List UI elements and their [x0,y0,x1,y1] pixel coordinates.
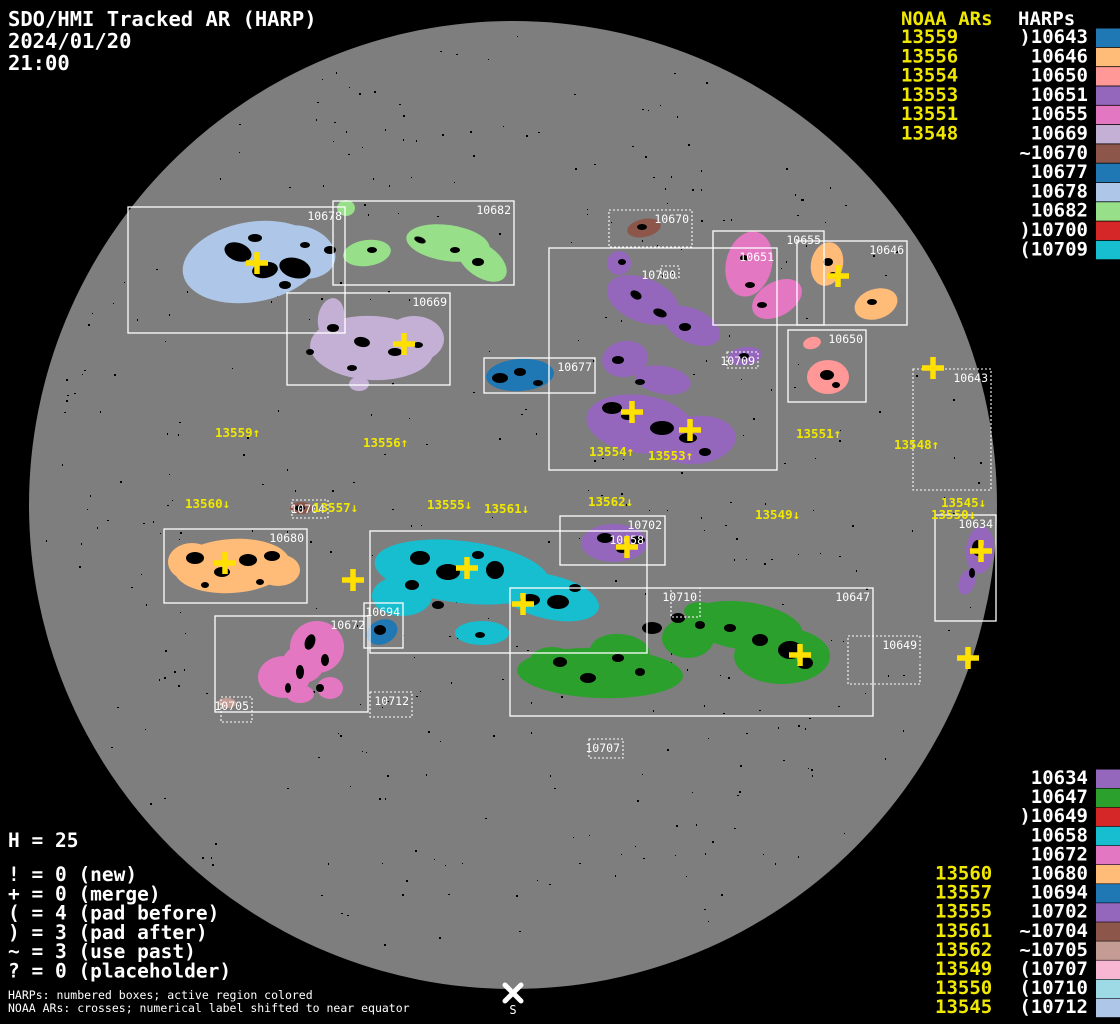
speckle [657,245,658,246]
speckle [421,525,422,526]
speckle [778,727,779,729]
active-region-10647 [662,618,714,658]
speckle [346,131,347,133]
legend-color-swatch-10682 [1096,202,1120,221]
harp-box-label-10643: 10643 [953,371,988,385]
speckle [725,525,727,526]
speckle [912,530,913,532]
speckle [316,608,317,609]
speckle [574,94,576,95]
speckle [362,147,363,148]
noaa-ar-label: 13545↓ [941,495,986,510]
harp-box-label-10680: 10680 [269,531,304,545]
noaa-ar-label: 13551↑ [796,426,841,441]
sunspot-patch [264,551,280,561]
speckle [384,944,386,946]
speckle [340,282,342,284]
speckle [271,301,272,303]
harp-box-label-10712: 10712 [374,694,409,708]
speckle [815,458,816,459]
speckle [561,696,563,698]
speckle [156,269,158,270]
speckle [798,725,800,727]
speckle [741,379,742,380]
sunspot-patch [321,654,329,666]
solar-harp-map: 1067810682106691067710651106551064610650… [0,0,1120,1024]
sunspot-patch [388,348,402,356]
speckle [403,115,405,117]
speckle [164,677,166,679]
legend-color-swatch-10678 [1096,183,1120,202]
speckle [665,188,666,190]
speckle [440,51,442,52]
speckle [426,444,428,445]
speckle [439,937,441,939]
sunspot-patch [602,402,622,414]
speckle [172,500,173,501]
speckle [167,433,168,435]
speckle [825,222,826,223]
speckle [167,505,169,506]
noaa-ar-label: 13560↓ [185,496,230,511]
sunspot-patch [186,552,204,564]
speckle [579,863,581,864]
legend-color-swatch-10649 [1096,808,1120,827]
sunspot-patch [374,625,386,635]
speckle [252,530,253,532]
speckle [499,438,501,440]
speckle [692,792,693,793]
legend-color-swatch-10709 [1096,241,1120,259]
speckle [648,110,649,111]
sunspot-patch [347,365,357,371]
legend-color-swatch-10694 [1096,884,1120,903]
sunspot-patch [553,657,567,667]
speckle [948,630,950,631]
noaa-ar-label: 13554↑ [589,444,634,459]
speckle [165,650,167,652]
speckle [786,261,787,263]
speckle [141,574,142,575]
speckle [589,835,590,836]
legend-color-swatch-10705 [1096,941,1120,960]
speckle [844,833,845,834]
speckle [653,177,655,178]
speckle [739,791,741,793]
speckle [92,313,93,314]
speckle [107,520,109,521]
noaa-ar-label: 13556↑ [363,435,408,450]
legend-color-swatch-10658 [1096,827,1120,846]
speckle [74,393,76,394]
speckle [353,482,355,483]
legend-color-swatch-10677 [1096,164,1120,183]
speckle [371,414,372,416]
speckle [753,418,755,420]
speckle [437,216,439,217]
sunspot-patch [327,324,339,332]
speckle [398,213,399,214]
speckle [643,858,645,859]
speckle [416,696,418,697]
speckle [764,563,766,565]
sunspot-patch [248,234,262,242]
speckle [373,178,374,180]
speckle [488,59,489,60]
speckle [675,855,676,856]
speckle [615,875,616,877]
speckle [588,490,589,491]
speckle [206,693,208,694]
speckle [649,510,650,511]
speckle [111,747,113,748]
speckle [687,669,688,671]
speckle [720,675,721,676]
noaa-ar-label: 13557↓ [313,500,358,515]
sunspot-patch [580,673,596,683]
speckle [406,880,408,882]
speckle [517,36,518,37]
speckle [723,713,725,714]
active-region-10669 [349,377,369,391]
sunspot-patch [486,561,504,579]
speckle [731,219,732,221]
speckle [632,146,634,147]
speckle [179,539,180,540]
sunspot-patch [650,421,674,435]
speckle [287,469,288,471]
legend-color-swatch-10680 [1096,865,1120,884]
sunspot-patch [724,624,736,632]
speckle [310,541,312,543]
speckle [798,856,799,858]
speckle [169,314,170,316]
speckle [239,152,240,153]
speckle [729,335,730,337]
sunspot-patch [405,580,419,590]
speckle [485,818,487,819]
speckle [667,203,668,204]
speckle [531,702,532,704]
speckle [97,527,98,529]
speckle [239,124,241,125]
speckle [317,102,319,103]
speckle [536,433,537,435]
speckle [145,729,146,730]
speckle [220,178,221,180]
harp-box-label-10655: 10655 [786,233,821,247]
speckle [379,798,381,800]
speckle [676,825,678,827]
harp-box-label-10672: 10672 [330,618,365,632]
speckle [865,693,866,694]
speckle [681,249,682,250]
speckle [316,119,317,121]
speckle [440,741,441,742]
speckle [46,540,47,542]
speckle [90,495,91,497]
speckle [845,205,847,206]
speckle [980,462,982,464]
speckle [797,215,799,216]
sunspot-patch [514,368,526,376]
speckle [531,732,532,734]
harp-box-label-10702: 10702 [627,518,662,532]
date-label: 2024/01/20 [8,29,131,53]
speckle [734,559,735,561]
speckle [88,324,90,326]
speckle [232,368,233,369]
speckle [492,517,493,518]
sunspot-patch [279,281,291,289]
sunspot-patch [296,665,304,679]
speckle [385,129,386,131]
speckle [113,303,114,304]
legend-color-swatch-10651 [1096,86,1120,105]
legend-harp-10709: (10709 [1019,238,1088,260]
speckle [728,677,730,679]
speckle [786,168,788,170]
harp-box-label-10670: 10670 [654,212,689,226]
app-title: SDO/HMI Tracked AR (HARP) [8,7,317,31]
speckle [805,728,806,730]
harp-box-label-10710: 10710 [662,590,697,604]
speckle [693,374,695,375]
speckle [309,319,310,320]
speckle [671,176,672,178]
speckle [525,409,527,410]
speckle [364,204,366,206]
speckle [336,72,337,74]
sunspot-patch [820,370,834,380]
speckle [704,909,706,910]
speckle [538,132,540,133]
legend-harp-10712: (10712 [1019,996,1088,1018]
speckle [808,768,809,769]
noaa-ar-label: 13559↑ [215,425,260,440]
speckle [359,93,361,95]
harp-box-label-10705: 10705 [214,699,249,713]
speckle [575,168,577,170]
speckle [146,604,147,606]
sunspot-patch [285,683,291,693]
harp-box-label-10669: 10669 [412,295,447,309]
harp-box-label-10700: 10700 [641,268,676,282]
harp-box-label-10709: 10709 [720,354,755,368]
speckle [521,414,523,415]
speckle [705,853,706,855]
speckle [473,392,475,393]
harp-box-label-10647: 10647 [835,590,870,604]
speckle [571,242,572,243]
noaa-ar-label: 13561↓ [484,501,529,516]
speckle [178,434,179,436]
sunspot-patch [642,622,662,634]
speckle [402,894,404,896]
speckle [903,675,905,676]
speckle [798,554,799,555]
speckle [382,863,383,864]
sunspot-patch [367,247,377,253]
speckle [771,389,772,391]
speckle [587,214,588,215]
speckle [692,189,694,191]
harp-box-label-10646: 10646 [869,243,904,257]
speckle [903,730,904,732]
speckle [64,412,66,413]
speckle [370,299,371,300]
noaa-ar-label: 13548↑ [894,437,939,452]
speckle [164,798,166,799]
speckle [411,525,412,527]
speckle [838,706,840,707]
legend-noaa-13548: 13548 [901,123,958,145]
speckle [743,435,744,436]
speckle [660,105,661,106]
speckle [451,682,452,684]
footnote-line: HARPs: numbered boxes; active region col… [8,988,313,1002]
harp-box-label-10682: 10682 [476,203,511,217]
speckle [730,502,732,503]
legend-color-swatch-10650 [1096,67,1120,86]
speckle [187,291,188,293]
speckle [399,104,401,105]
speckle [323,185,324,187]
noaa-ar-label: 13555↓ [427,497,472,512]
speckle [830,187,831,189]
speckle [211,857,212,859]
sunspot-patch [618,259,626,265]
speckle [131,587,133,588]
speckle [202,857,204,859]
legend-color-swatch-10669 [1096,125,1120,144]
sunspot-patch [637,224,647,230]
speckle [62,464,63,466]
speckle [839,556,841,557]
speckle [621,854,622,855]
speckle [527,650,529,651]
speckle [456,54,458,55]
speckle [737,795,739,796]
speckle [262,484,264,485]
speckle [813,510,814,511]
speckle [704,705,705,707]
speckle [414,657,415,658]
speckle [420,691,421,692]
speckle [120,481,122,483]
speckle [795,194,796,196]
speckle [686,876,687,877]
speckle [403,139,404,141]
speckle [385,798,386,800]
speckle [180,612,181,613]
sunspot-patch [745,282,755,288]
active-region-10647 [530,647,574,673]
noaa-ar-label: 13562↓ [588,494,633,509]
sunspot-patch [472,551,484,559]
speckle [888,675,889,677]
speckle [537,880,538,881]
speckle [667,510,668,511]
legend-color-swatch-10634 [1096,770,1120,789]
speckle [587,209,588,210]
legend-color-swatch-10700 [1096,222,1120,241]
speckle [594,460,596,462]
speckle [449,636,451,637]
speckle [180,532,182,534]
speckle [645,156,647,158]
harp-box-label-10651: 10651 [739,250,774,264]
sunspot-patch [671,613,685,623]
speckle [701,517,702,519]
speckle [434,859,435,860]
speckle [653,710,654,712]
legend-color-swatch-10672 [1096,846,1120,865]
harp-box-label-10649: 10649 [882,638,917,652]
legend-color-swatch-10712 [1096,999,1120,1018]
speckle [708,921,709,922]
speckle [462,863,463,864]
sunspot-patch [752,634,768,646]
speckle [879,411,881,413]
sunspot-patch [475,632,485,638]
speckle [701,220,703,222]
sunspot-patch [635,379,645,385]
speckle [667,749,669,751]
speckle [801,199,803,201]
speckle [642,774,643,775]
speckle [66,379,68,381]
speckle [124,282,125,283]
speckle [66,400,68,402]
legend-color-swatch-10647 [1096,789,1120,808]
speckle [389,185,390,187]
sunspot-patch [832,382,840,388]
speckle [708,738,709,739]
speckle [143,523,145,524]
speckle [953,399,955,401]
legend-color-swatch-10646 [1096,48,1120,67]
speckle [701,170,702,172]
speckle [516,895,518,897]
speckle [340,735,342,737]
sunspot-patch [695,621,705,629]
speckle [763,854,764,855]
speckle [954,457,955,459]
speckle [174,671,176,673]
speckle [809,718,811,719]
speckle [409,418,410,419]
speckle [706,360,707,362]
speckle [179,422,181,423]
sunspot-patch [316,684,324,692]
speckle [347,915,349,916]
speckle [611,222,612,223]
speckle [349,87,350,88]
speckle [243,454,245,456]
harp-box-label-10678: 10678 [307,209,342,223]
speckle [384,454,386,455]
sunspot-patch [256,579,264,585]
speckle [645,593,646,595]
speckle [503,126,504,127]
speckle [704,530,705,531]
speckle [642,109,644,110]
speckle [448,894,450,895]
speckle [696,824,697,826]
sunspot-patch [450,247,460,253]
speckle [212,864,214,866]
